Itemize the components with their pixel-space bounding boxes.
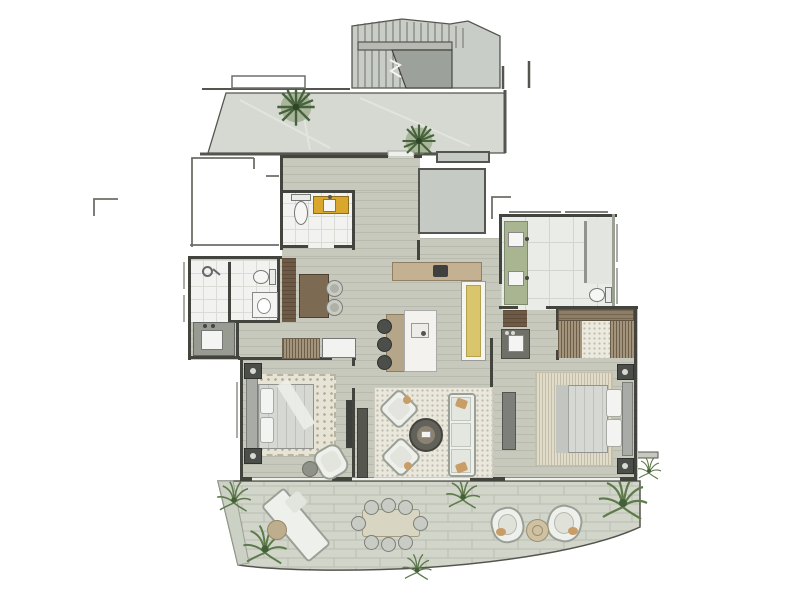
kitchen-approach-floor <box>420 238 502 258</box>
faucet-dot <box>511 331 515 335</box>
entry-door-threshold <box>388 151 414 157</box>
closet-top-cabinet <box>558 309 634 321</box>
dining-chair <box>364 500 379 515</box>
staircase <box>352 19 529 89</box>
dining-chair <box>398 535 413 550</box>
wall <box>352 388 355 480</box>
wall <box>240 360 243 477</box>
desk-chair-seat <box>330 303 339 312</box>
wall <box>280 190 283 250</box>
faucet-dot <box>421 331 426 336</box>
bedroom2-headboard <box>246 377 258 455</box>
bar-sink <box>508 335 524 352</box>
service-core <box>418 168 486 234</box>
ottoman <box>302 461 318 477</box>
wall <box>188 356 240 359</box>
wall-tv-panel <box>346 400 352 448</box>
wall-exterior-left <box>188 256 191 360</box>
pillow <box>260 388 274 414</box>
cooktop <box>433 265 448 277</box>
hall-floor <box>352 192 420 262</box>
faucet-dot <box>203 324 207 328</box>
master-headboard <box>622 382 633 456</box>
stair-landing <box>358 42 452 50</box>
bar-stool <box>377 319 392 334</box>
slider-threshold-bedroom2 <box>252 477 332 481</box>
lamp-dot <box>250 453 256 459</box>
lamp-dot <box>622 369 628 375</box>
wall <box>280 155 283 195</box>
washbasin-oval <box>257 298 271 314</box>
wall <box>352 190 355 250</box>
terrace-table-rim <box>532 525 543 536</box>
guest-vanity-sink <box>201 330 223 350</box>
coffee-table-book <box>421 431 431 438</box>
toilet-tank <box>605 287 612 303</box>
lamp-dot <box>622 463 628 469</box>
faucet-dot <box>525 237 529 241</box>
tan-pillow <box>496 528 506 536</box>
hall-closet-rail <box>282 338 320 359</box>
lamp-dot <box>250 368 256 374</box>
pantry-front-olive <box>466 285 481 357</box>
dining-chair <box>381 537 396 552</box>
pillow <box>606 389 622 417</box>
master-dresser <box>502 392 516 450</box>
dining-chair <box>398 500 413 515</box>
faucet-dot <box>505 331 509 335</box>
tan-pillow <box>403 396 411 404</box>
dining-chair <box>364 535 379 550</box>
shower-glass-screen <box>584 221 587 283</box>
tan-pillow <box>568 527 578 535</box>
toilet-bowl <box>294 201 308 225</box>
island-marble-top <box>404 310 437 372</box>
wall <box>280 155 388 158</box>
vanity-sink <box>508 232 524 247</box>
foot-blanket <box>556 385 569 453</box>
window-wall <box>612 214 615 310</box>
wall <box>188 256 282 259</box>
bar-stool <box>377 355 392 370</box>
wall <box>414 155 422 158</box>
side-table <box>267 520 287 540</box>
closet-carpet <box>582 321 610 358</box>
toilet-tank <box>269 269 276 285</box>
shower-zone <box>587 218 612 284</box>
faucet-dot <box>211 324 215 328</box>
wall <box>499 214 617 217</box>
wall <box>499 214 502 284</box>
closet-hanging-right <box>610 321 634 358</box>
service-core-upper <box>436 151 490 163</box>
shower-head <box>202 266 213 277</box>
toilet-tank <box>291 194 311 201</box>
wall <box>280 190 355 193</box>
wall <box>236 322 239 359</box>
dining-chair <box>413 516 428 531</box>
tan-pillow <box>404 462 412 470</box>
pillow <box>606 419 622 447</box>
entry-hall-floor <box>282 158 420 194</box>
faucet-dot <box>328 195 332 199</box>
island-sink <box>411 323 429 338</box>
dining-chair <box>381 498 396 513</box>
toilet-bowl <box>589 288 605 302</box>
pillow <box>260 417 274 443</box>
wall <box>417 240 420 260</box>
slider-threshold-master <box>505 477 620 481</box>
sofa-cushion <box>451 423 471 447</box>
wall <box>620 477 637 481</box>
vanity-sink <box>508 271 524 286</box>
wardrobe-panel <box>282 258 296 322</box>
floor-plan <box>0 0 800 600</box>
desk-chair-seat <box>330 284 339 293</box>
bar-cabinet <box>503 310 527 327</box>
wall <box>228 262 231 322</box>
wall <box>352 360 355 366</box>
terrace-ledge <box>636 452 658 458</box>
wall <box>280 245 308 248</box>
wall <box>499 306 518 309</box>
dining-chair <box>351 516 366 531</box>
closet-hanging-left <box>558 321 582 358</box>
desk <box>299 274 329 318</box>
wall-exterior-right <box>634 306 637 477</box>
media-console <box>357 408 368 478</box>
faucet-dot <box>525 276 529 280</box>
storage-bench <box>322 338 356 358</box>
wall <box>334 245 355 248</box>
bar-stool <box>377 337 392 352</box>
parapet-outline <box>232 76 305 88</box>
vanity-washbasin <box>323 199 336 212</box>
toilet-bowl <box>253 270 269 284</box>
